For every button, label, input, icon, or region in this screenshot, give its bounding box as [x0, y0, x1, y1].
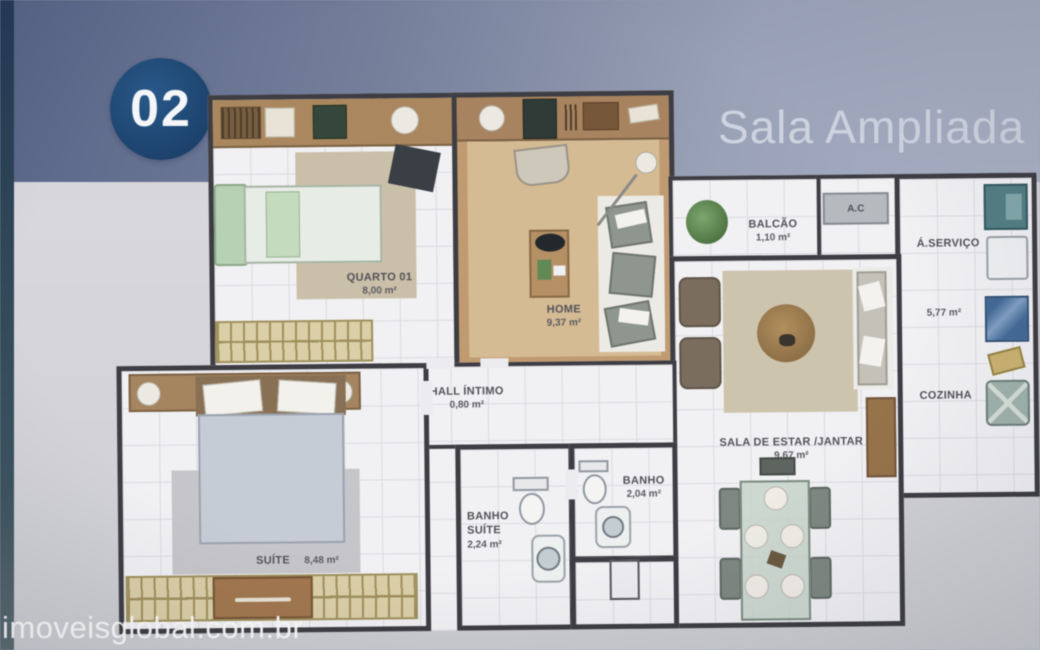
door-opening: [566, 469, 578, 499]
corridor: [570, 556, 679, 629]
room-name: HOME: [514, 302, 614, 317]
single-bed: [214, 182, 383, 266]
round-rug: [757, 304, 816, 363]
room-balcao: BALCÃO 1,10 m²: [668, 175, 823, 263]
room-banho: BANHO 2,04 m²: [569, 442, 678, 561]
sofa-cushion: [609, 252, 657, 298]
door: [609, 560, 639, 600]
desk-pad: [265, 107, 295, 137]
room-label: QUARTO 01 8,00 m²: [309, 270, 449, 299]
room-sala: SALA DE ESTAR /JANTAR 9,67 m²: [669, 254, 905, 628]
desk-books: [565, 104, 577, 130]
door-opening: [426, 359, 454, 369]
room-area: 2,24 m²: [467, 538, 529, 552]
laundry-tank: [984, 184, 1028, 230]
plate: [780, 524, 804, 548]
room-name: COZINHA: [904, 388, 988, 403]
room-area: 8,00 m²: [310, 284, 450, 298]
watermark: imoveisglobal.com.br: [2, 610, 303, 646]
room-name: SALA DE ESTAR /JANTAR: [701, 434, 881, 450]
desk-drawer: [221, 107, 261, 139]
dining-chair: [719, 558, 741, 600]
tank-basin: [1006, 194, 1022, 220]
room-suite: SUÍTE 8,48 m²: [116, 363, 431, 634]
armchair: [679, 277, 722, 327]
room-ac: A.C: [816, 174, 901, 261]
table-plant: [537, 260, 551, 280]
desk: [213, 98, 453, 149]
kitchen-sink: [986, 380, 1030, 426]
room-area-label: 5,77 m²: [909, 306, 979, 320]
wardrobe: [215, 320, 373, 364]
dining-chair: [809, 557, 831, 599]
sofa-throw: [858, 281, 886, 312]
room-label: BALCÃO 1,10 m²: [731, 217, 815, 245]
toilet: [583, 474, 607, 504]
desk-laptop: [313, 105, 347, 139]
home-desk: [457, 95, 669, 141]
room-area: 1,10 m²: [731, 231, 815, 245]
room-name: BALCÃO: [731, 217, 815, 232]
dining-chair: [719, 488, 741, 530]
room-name: QUARTO 01: [309, 270, 449, 286]
room-area: 5,77 m²: [909, 306, 979, 320]
floorplan-photo: 02 Sala Ampliada QUARTO 01 8,00 m²: [0, 0, 1040, 650]
room-name: BANHO SUÍTE: [467, 509, 529, 538]
table-decor: [535, 234, 565, 252]
sink: [602, 516, 624, 538]
sofa: [856, 271, 887, 385]
armchair: [679, 337, 722, 389]
plate: [781, 574, 805, 598]
sink-counter: [531, 535, 566, 583]
pillow: [202, 379, 263, 417]
room-name: Á.SERVIÇO: [900, 236, 996, 251]
desk-lamp: [391, 106, 419, 134]
dining-chair: [759, 457, 795, 475]
sink-counter: [595, 506, 631, 548]
bed-mattress: [244, 184, 383, 263]
room-name: SUÍTE: [256, 554, 290, 566]
desk-monitor: [523, 99, 557, 139]
pillow: [277, 380, 337, 415]
ac-unit: A.C: [823, 192, 889, 225]
dining-chair: [809, 487, 831, 529]
toilet-tank: [578, 460, 608, 472]
rug-decor: [779, 334, 795, 346]
bed-blanket: [266, 191, 301, 257]
floor-lamp: [635, 152, 657, 174]
room-name: BANHO: [615, 473, 673, 488]
room-area: 2,04 m²: [615, 488, 673, 502]
ac-label: A.C: [847, 203, 864, 214]
room-label: COZINHA: [904, 388, 988, 403]
desk-box: [583, 102, 619, 130]
room-area: 8,48 m²: [304, 555, 339, 566]
sink: [536, 547, 560, 571]
desk-paper: [628, 104, 660, 124]
stove: [985, 296, 1029, 342]
plate: [764, 486, 788, 510]
room-label: Á.SERVIÇO: [900, 236, 996, 251]
dresser-handle: [235, 597, 291, 602]
table-book: [553, 266, 565, 276]
cutting-board: [987, 346, 1025, 376]
door-opening: [421, 381, 433, 415]
room-banho-suite: BANHO SUÍTE 2,24 m²: [455, 443, 575, 630]
nightstand-lamp: [137, 382, 161, 406]
room-area: 9,37 m²: [514, 316, 614, 330]
room-quarto01: QUARTO 01 8,00 m²: [208, 93, 461, 372]
plant: [686, 200, 728, 244]
desk-lamp: [479, 105, 505, 131]
plate: [744, 524, 768, 548]
coffee-table: [529, 229, 570, 297]
sofa-throw: [859, 336, 885, 367]
room-label: SUÍTE 8,48 m²: [227, 549, 367, 571]
centerpiece: [767, 550, 787, 569]
plate: [745, 574, 769, 598]
door-opening: [480, 358, 508, 368]
room-label: HOME 9,37 m²: [514, 302, 614, 330]
double-bed: [196, 375, 348, 547]
floorplan: QUARTO 01 8,00 m²: [0, 0, 1040, 650]
room-label: BANHO SUÍTE 2,24 m²: [467, 509, 529, 551]
room-cozinha: Á.SERVIÇO 5,77 m² COZINHA: [894, 173, 1039, 498]
toilet-tank: [513, 477, 549, 491]
dining-table: [740, 480, 811, 621]
room-label: BANHO 2,04 m²: [615, 473, 673, 501]
duvet: [198, 413, 345, 545]
room-home: HOME 9,37 m²: [452, 90, 677, 368]
